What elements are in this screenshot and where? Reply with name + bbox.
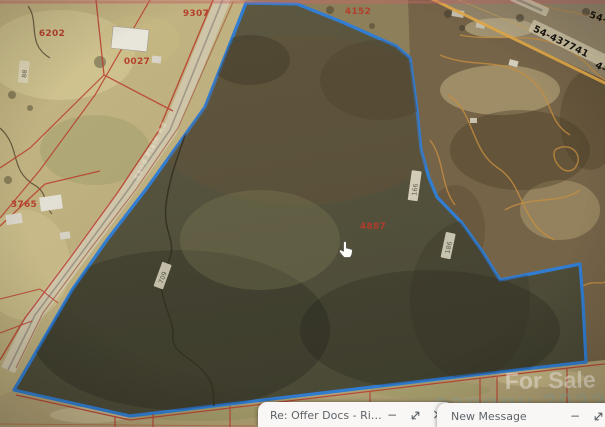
compose-window-new-message[interactable]: New Message − × bbox=[437, 403, 605, 427]
minimize-icon[interactable]: − bbox=[386, 408, 398, 422]
compose-window-offer-docs[interactable]: Re: Offer Docs - Ridgec... − × bbox=[258, 402, 454, 427]
label-chip: 166 bbox=[410, 183, 420, 196]
parcel-number: 6202 bbox=[39, 29, 65, 39]
parcel-number: 4887 bbox=[360, 222, 386, 232]
compose-window-title[interactable]: Re: Offer Docs - Ridgec... bbox=[270, 409, 386, 422]
label-chip: 88 bbox=[20, 69, 29, 78]
parcel-number: 4152 bbox=[345, 7, 371, 17]
parcel-number: 0027 bbox=[124, 57, 150, 67]
compose-window-title[interactable]: New Message bbox=[451, 410, 527, 423]
minimize-icon[interactable]: − bbox=[569, 409, 581, 423]
popout-icon[interactable] bbox=[592, 409, 604, 423]
screenshot-root: 6202 9307 0027 4152 3765 4887 54-437741 … bbox=[0, 0, 605, 427]
parcel-number: 3765 bbox=[11, 200, 37, 210]
gis-aerial-map[interactable]: 6202 9307 0027 4152 3765 4887 54-437741 … bbox=[0, 0, 605, 427]
popout-icon[interactable] bbox=[409, 408, 421, 422]
parcel-number: 9307 bbox=[183, 9, 209, 19]
